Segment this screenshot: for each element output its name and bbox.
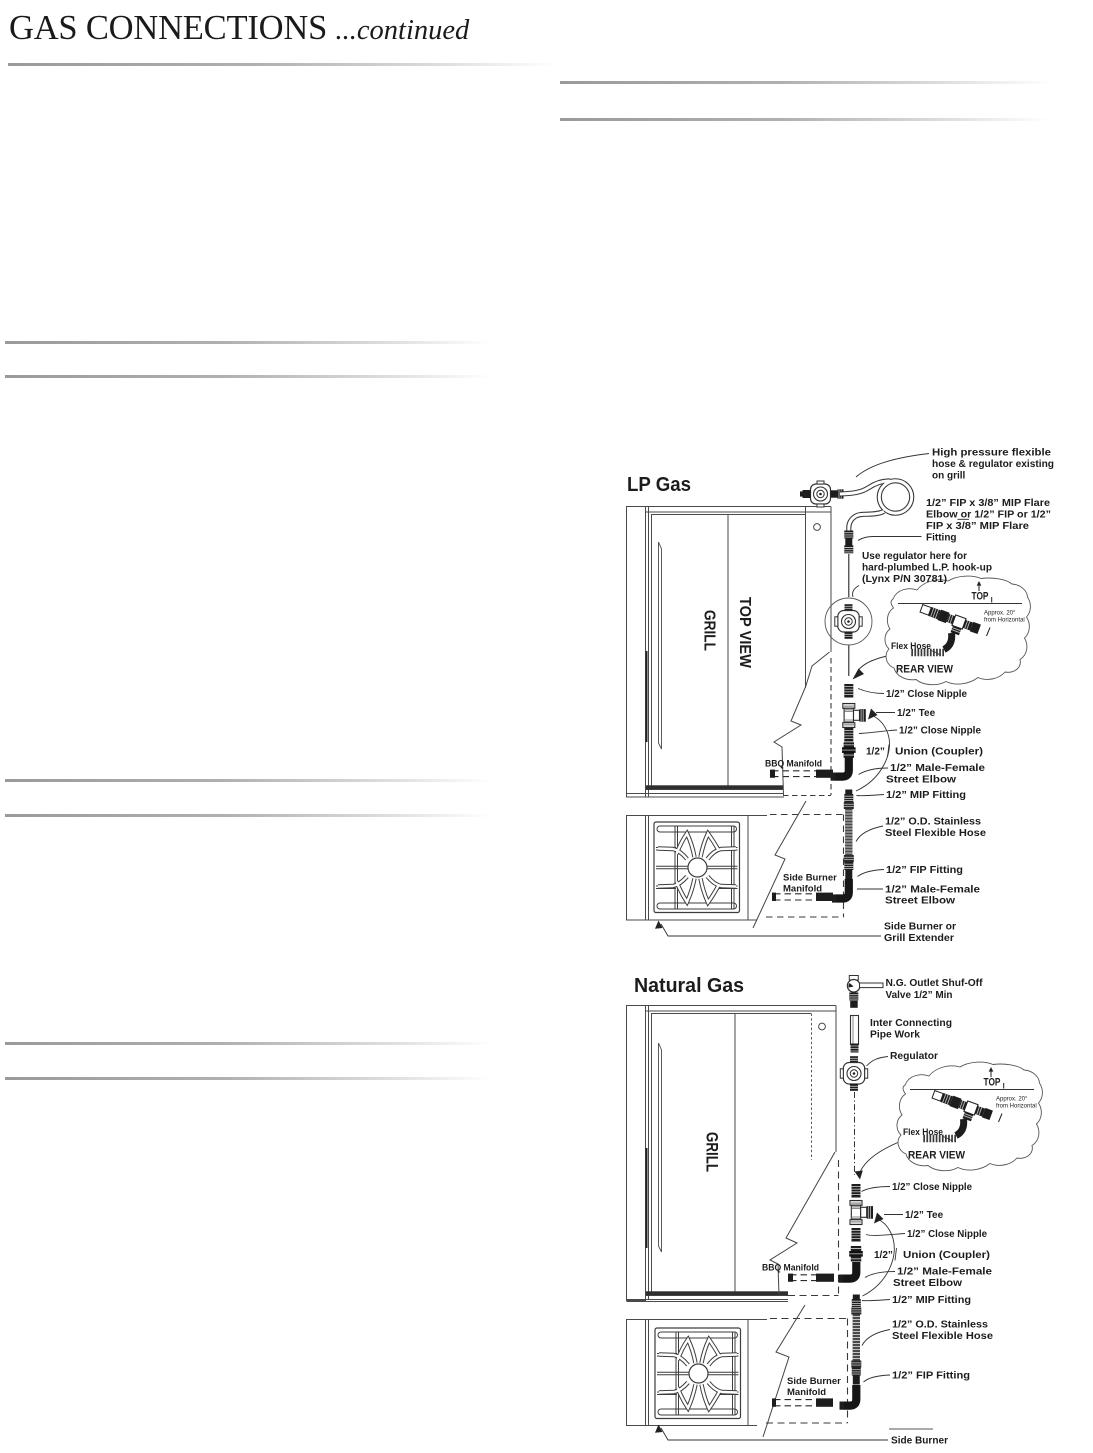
- svg-text:1/2” Tee: 1/2” Tee: [905, 1210, 944, 1221]
- svg-text:Street Elbow: Street Elbow: [885, 896, 955, 907]
- svg-text:1/2” Close Nipple: 1/2” Close Nipple: [886, 689, 967, 700]
- svg-text:Side Burner: Side Burner: [891, 1436, 948, 1447]
- svg-text:LP Gas: LP Gas: [627, 473, 691, 496]
- svg-text:1/2” Close Nipple: 1/2” Close Nipple: [899, 726, 981, 737]
- svg-text:Union (Coupler): Union (Coupler): [903, 1250, 990, 1261]
- svg-text:Street Elbow: Street Elbow: [886, 775, 956, 786]
- svg-text:Pipe Work: Pipe Work: [870, 1029, 920, 1041]
- svg-text:1/2” O.D. Stainless: 1/2” O.D. Stainless: [885, 817, 981, 828]
- svg-text:Fitting: Fitting: [926, 533, 957, 544]
- svg-text:1/2” Close Nipple: 1/2” Close Nipple: [892, 1182, 972, 1193]
- svg-text:High pressure flexible: High pressure flexible: [932, 448, 1051, 459]
- svg-text:1/2” MIP Fitting: 1/2” MIP Fitting: [892, 1295, 971, 1306]
- svg-text:BBQ Manifold: BBQ Manifold: [762, 1263, 819, 1274]
- svg-text:1/2” Tee: 1/2” Tee: [897, 708, 936, 719]
- svg-text:BBQ Manifold: BBQ Manifold: [765, 759, 822, 770]
- svg-text:Elbow or 1/2” FIP or 1/2”: Elbow or 1/2” FIP or 1/2”: [926, 510, 1051, 521]
- svg-text:Inter Connecting: Inter Connecting: [870, 1017, 952, 1029]
- svg-text:Street Elbow: Street Elbow: [893, 1278, 962, 1289]
- svg-text:hard-plumbed L.P. hook-up: hard-plumbed L.P. hook-up: [862, 563, 992, 574]
- svg-text:1/2” MIP Fitting: 1/2” MIP Fitting: [886, 790, 966, 801]
- svg-text:Side Burner or: Side Burner or: [884, 922, 956, 933]
- svg-text:hose & regulator existing: hose & regulator existing: [932, 459, 1054, 470]
- svg-text:1/2” O.D. Stainless: 1/2” O.D. Stainless: [892, 1320, 988, 1331]
- svg-text:GRILL: GRILL: [703, 1132, 721, 1172]
- svg-text:Steel Flexible Hose: Steel Flexible Hose: [885, 828, 986, 839]
- svg-text:1/2” FIP x 3/8” MIP Flare: 1/2” FIP x 3/8” MIP Flare: [926, 498, 1050, 509]
- svg-text:1/2” FIP Fitting: 1/2” FIP Fitting: [892, 1371, 970, 1382]
- svg-text:Use regulator here for: Use regulator here for: [862, 551, 967, 562]
- svg-text:1/2” Close Nipple: 1/2” Close Nipple: [907, 1229, 987, 1240]
- svg-text:1/2” FIP Fitting: 1/2” FIP Fitting: [886, 865, 963, 876]
- svg-text:(Lynx P/N 30781): (Lynx P/N 30781): [862, 574, 947, 585]
- svg-text:1/2” Male-Female: 1/2” Male-Female: [897, 1267, 992, 1278]
- svg-text:1/2” Male-Female: 1/2” Male-Female: [890, 763, 985, 774]
- svg-text:Side Burner: Side Burner: [787, 1376, 841, 1387]
- svg-text:1/2” Male-Female: 1/2” Male-Female: [885, 885, 980, 896]
- svg-text:1/2”: 1/2”: [866, 747, 885, 758]
- svg-text:1/2”: 1/2”: [874, 1250, 893, 1261]
- svg-text:Regulator: Regulator: [890, 1050, 938, 1062]
- svg-text:N.G. Outlet Shuf-Off: N.G. Outlet Shuf-Off: [886, 977, 983, 989]
- svg-text:GRILL: GRILL: [701, 610, 718, 651]
- svg-text:TOP VIEW: TOP VIEW: [736, 597, 753, 669]
- svg-text:Steel Flexible Hose: Steel Flexible Hose: [892, 1331, 993, 1342]
- svg-text:on grill: on grill: [932, 471, 966, 482]
- svg-text:Natural Gas: Natural Gas: [634, 974, 744, 997]
- svg-text:Valve 1/2” Min: Valve 1/2” Min: [886, 989, 953, 1001]
- svg-text:Grill Extender: Grill Extender: [884, 933, 954, 944]
- svg-text:Side Burner: Side Burner: [783, 873, 837, 884]
- svg-text:Union (Coupler): Union (Coupler): [895, 747, 983, 758]
- svg-text:FIP x 3/8” MIP Flare: FIP x 3/8” MIP Flare: [926, 521, 1029, 532]
- svg-text:Manifold: Manifold: [787, 1387, 826, 1398]
- svg-text:Manifold: Manifold: [783, 884, 822, 895]
